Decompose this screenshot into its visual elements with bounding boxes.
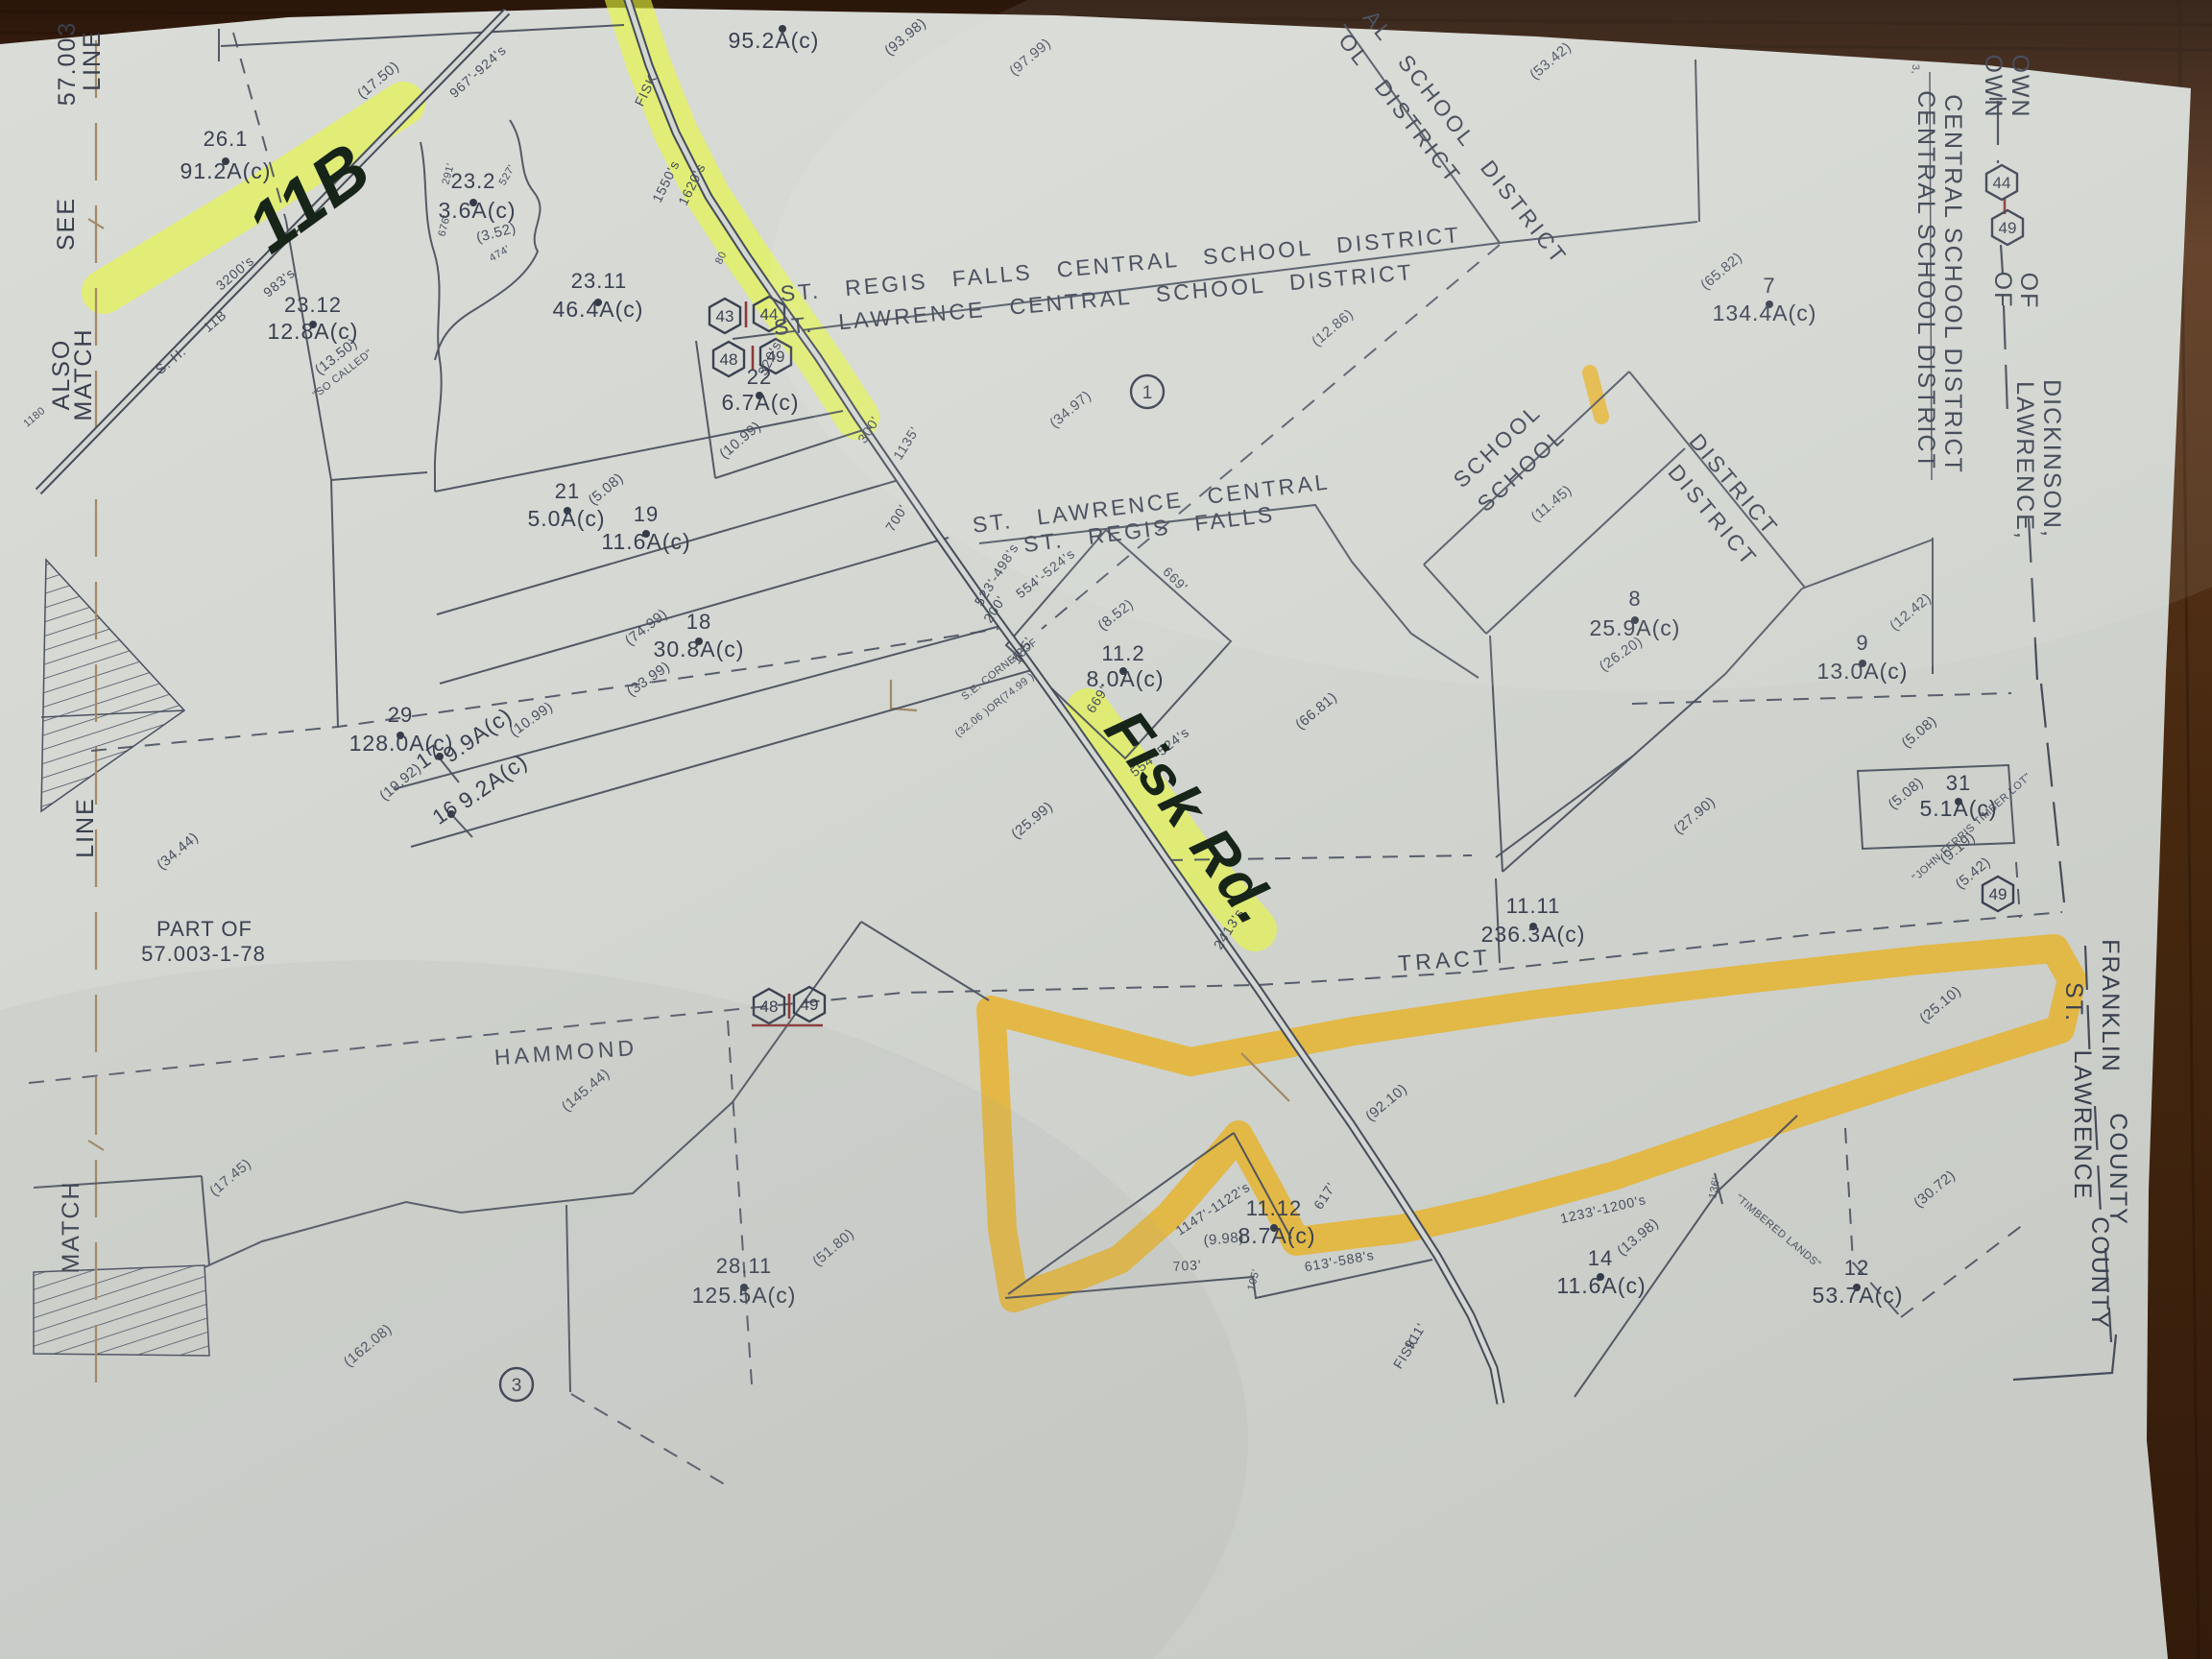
map-label: 23.11 xyxy=(571,269,627,293)
map-label: 5.0A(c) xyxy=(527,506,605,531)
map-label: PART OF xyxy=(156,917,252,941)
map-label: 236.3A(c) xyxy=(1481,922,1586,947)
map-label: 18 xyxy=(686,610,711,634)
map-label: 8.7A(c) xyxy=(1238,1223,1315,1248)
map-label: 128.0A(c) xyxy=(349,731,454,756)
map-label: 57.003-1-78 xyxy=(141,942,266,966)
map-label: 21 xyxy=(555,479,580,503)
map-label: 23.2 xyxy=(451,169,496,193)
route-number: 43 xyxy=(716,307,734,325)
route-number: 49 xyxy=(1989,885,2008,903)
map-label: 26.1 xyxy=(204,127,249,151)
map-label: 6.7A(c) xyxy=(721,390,799,415)
map-label: COUNTY xyxy=(2086,1216,2113,1330)
map-label: SEE xyxy=(53,197,80,251)
map-label: FRANKLIN xyxy=(2097,939,2124,1073)
map-label: 19 xyxy=(634,502,659,526)
map-label: 29 xyxy=(388,703,413,727)
map-label: MATCH xyxy=(70,327,97,421)
map-canvas: 434448494849444949 13 57.003LINESEEALSOM… xyxy=(0,0,2212,1659)
tax-map-photo: 434448494849444949 13 57.003LINESEEALSOM… xyxy=(0,0,2212,1659)
map-label: 46.4A(c) xyxy=(553,297,644,322)
map-label: 12 xyxy=(1844,1256,1869,1280)
map-label: 30.8A(c) xyxy=(654,637,745,661)
map-label: 11.12 xyxy=(1246,1196,1302,1220)
map-label: 31 xyxy=(1946,771,1971,795)
route-number: 48 xyxy=(720,350,738,369)
map-label: LINE xyxy=(72,797,99,858)
map-label: 95.2A(c) xyxy=(729,28,820,53)
map-label: ST. xyxy=(2060,982,2087,1022)
map-label: LINE xyxy=(79,30,106,91)
map-label: 91.2A(c) xyxy=(180,158,272,183)
map-label: 57.003 xyxy=(54,21,81,106)
map-label: 53.7A(c) xyxy=(1813,1283,1904,1308)
map-label: 11.6A(c) xyxy=(1556,1273,1646,1298)
map-label: 11.6A(c) xyxy=(601,529,690,554)
map-label: 11.2 xyxy=(1101,641,1144,665)
map-label: COUNTY xyxy=(2104,1113,2131,1226)
route-number: 49 xyxy=(801,996,819,1014)
map-label: LAWRENCE xyxy=(2069,1050,2096,1201)
map-label: 23.12 xyxy=(284,293,342,317)
map-label: 14 xyxy=(1588,1246,1613,1270)
map-label: 11.11 xyxy=(1506,894,1561,918)
